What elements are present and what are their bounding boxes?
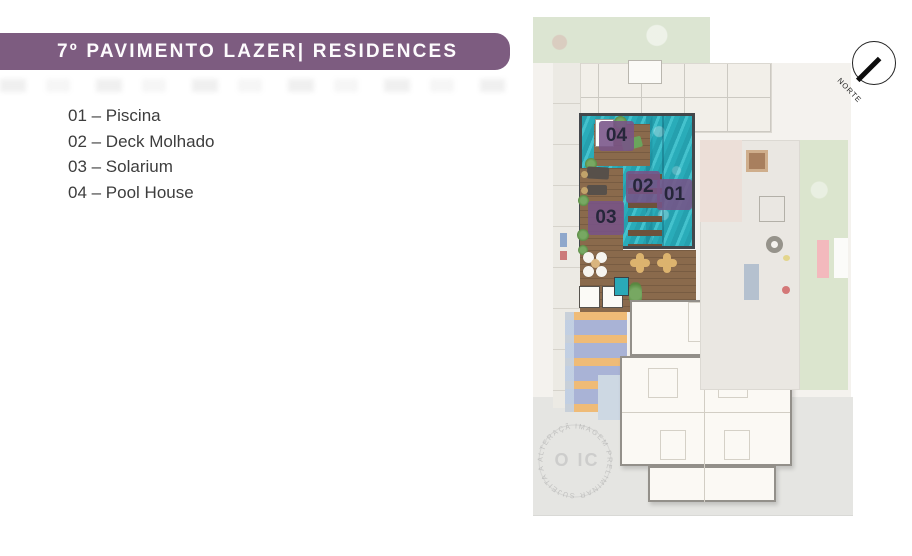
shaft-rect [744, 264, 759, 300]
legend: 01 – Piscina 02 – Deck Molhado 03 – Sola… [68, 103, 214, 205]
clover-table-icon [630, 253, 650, 273]
table-icon [591, 259, 600, 268]
page: { "header": { "title": "7º PAVIMENTO LAZ… [0, 0, 912, 556]
chair-icon [583, 266, 594, 277]
dining-table-icon [746, 150, 768, 172]
building-interior-line [622, 412, 790, 413]
title-banner: 7º PAVIMENTO LAZER| RESIDENCES [0, 33, 510, 70]
service-box [579, 286, 600, 308]
page-title: 7º PAVIMENTO LAZER| RESIDENCES [57, 41, 458, 62]
watermark-center-text: O IC [547, 450, 607, 471]
legend-item-pool-house: 04 – Pool House [68, 180, 214, 206]
pouf-icon [581, 171, 588, 178]
stair-marker-red [560, 251, 567, 260]
building-room [660, 430, 686, 460]
legend-item-deck-molhado: 02 – Deck Molhado [68, 129, 214, 155]
chair-icon [596, 266, 607, 277]
plunge-pool [614, 277, 629, 296]
building-room [648, 368, 678, 398]
badge-02-deck-molhado: 02 [626, 171, 660, 203]
vegetation-strip-top [533, 17, 710, 63]
stair-marker-blue [560, 233, 567, 247]
terrace-round-feature [766, 236, 783, 253]
deck-lounger [587, 185, 607, 195]
legend-item-piscina: 01 – Piscina [68, 103, 214, 129]
lawn-white-rect [834, 238, 848, 278]
lawn-pink-rect [817, 240, 829, 278]
floor-plan: 04 02 01 03 IMAGEM PRELIMINAR SUJEITA A … [533, 17, 855, 518]
building-notch [628, 60, 662, 84]
red-dot-marker [782, 286, 790, 294]
badge-04-pool-house: 04 [599, 121, 634, 151]
ghost-text-band [0, 79, 505, 92]
badge-01-piscina: 01 [657, 179, 692, 210]
yellow-dot-marker [783, 255, 790, 261]
terrace-pink-zone [700, 140, 742, 222]
badge-label: 03 [595, 207, 616, 229]
terrace-square-feature [759, 196, 785, 222]
badge-label: 04 [606, 125, 627, 147]
legend-item-solarium: 03 – Solarium [68, 154, 214, 180]
badge-03-solarium: 03 [588, 201, 624, 235]
badge-label: 01 [664, 184, 685, 206]
building-room [724, 430, 750, 460]
pouf-icon [581, 187, 588, 194]
badge-label: 02 [632, 176, 653, 198]
deck-lounger [587, 166, 610, 179]
clover-table-icon [657, 253, 677, 273]
building-footprint-bottom [648, 466, 776, 502]
